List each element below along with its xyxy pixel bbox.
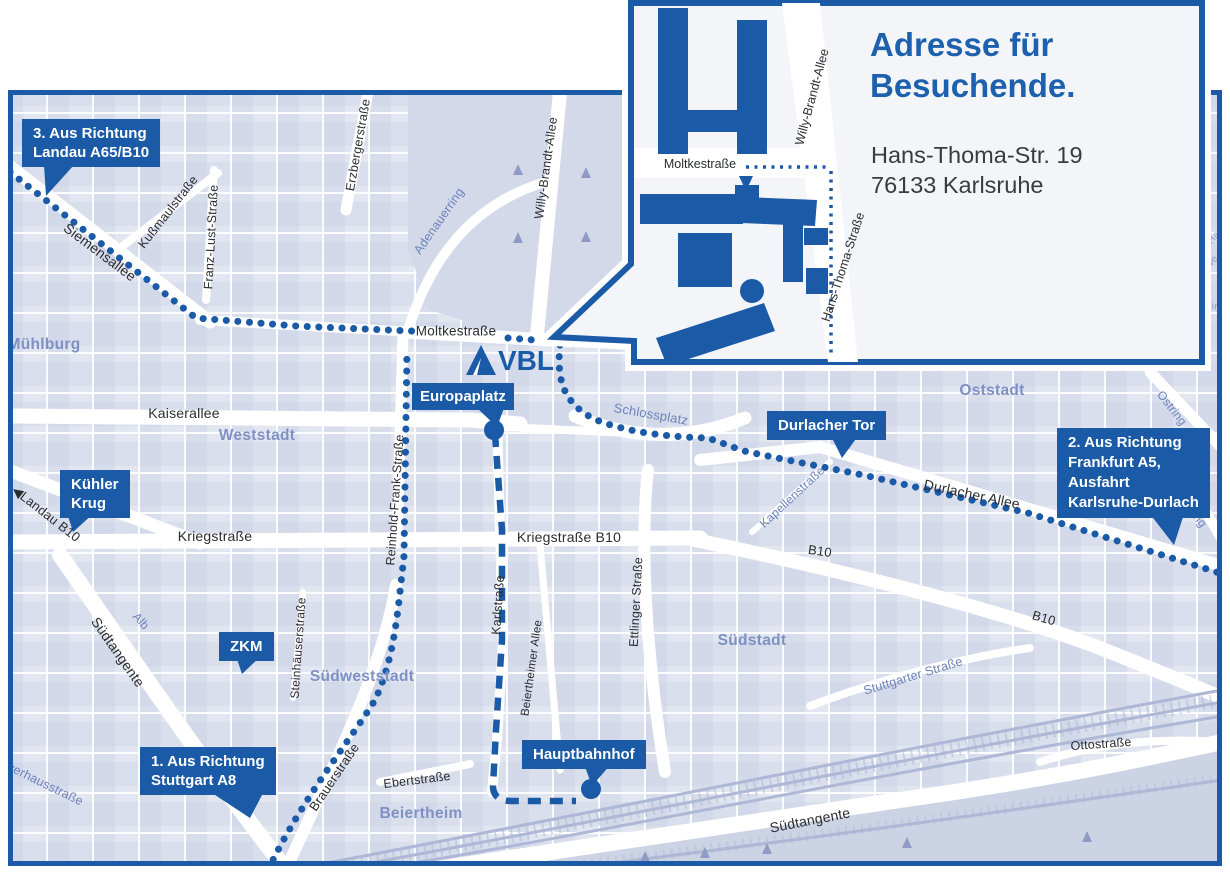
- karlsruhe-directions-map: Siemensallee Kußmaulstraße Franz-Lust-St…: [0, 0, 1230, 874]
- district-label-beiertheim: Beiertheim: [379, 805, 462, 823]
- district-label-suedstadt: Südstadt: [718, 632, 787, 650]
- callout-europaplatz: Europaplatz: [412, 383, 514, 410]
- callout-frankfurt-line2: Frankfurt A5,: [1068, 453, 1199, 473]
- callout-stuttgart-line2: Stuttgart A8: [151, 771, 265, 790]
- street-label-kriegstrasse: Kriegstraße: [178, 528, 253, 544]
- callout-frankfurt-line3: Ausfahrt: [1068, 473, 1199, 493]
- callout-kuehler-krug: Kühler Krug: [60, 470, 130, 518]
- street-label-kaiserallee: Kaiserallee: [148, 405, 219, 421]
- inset-title-line1: Adresse für: [870, 24, 1075, 65]
- callout-landau-line2: Landau A65/B10: [33, 143, 149, 162]
- callout-frankfurt-line4: Karlsruhe-Durlach: [1068, 493, 1199, 513]
- street-label-kriegstrasse-b10: Kriegstraße B10: [517, 529, 621, 545]
- callout-hauptbahnhof: Hauptbahnhof: [522, 740, 646, 769]
- callout-durlacher-tor-label: Durlacher Tor: [778, 416, 875, 435]
- district-label-oststadt: Oststadt: [959, 382, 1024, 400]
- callout-hauptbahnhof-label: Hauptbahnhof: [533, 745, 635, 764]
- callout-frankfurt-line1: 2. Aus Richtung: [1068, 433, 1199, 453]
- callout-kuehler-krug-line1: Kühler: [71, 475, 119, 494]
- callout-kuehler-krug-line2: Krug: [71, 494, 119, 513]
- vbl-logo: VBL: [465, 342, 554, 376]
- map-canvas: Siemensallee Kußmaulstraße Franz-Lust-St…: [13, 95, 1217, 861]
- district-label-muehlburg: Mühlburg: [13, 336, 81, 354]
- callout-frankfurt-a5: 2. Aus Richtung Frankfurt A5, Ausfahrt K…: [1057, 428, 1210, 518]
- district-label-weststadt: Weststadt: [219, 427, 295, 445]
- street-label-b10-mid: B10: [807, 542, 833, 560]
- map-viewport: Siemensallee Kußmaulstraße Franz-Lust-St…: [13, 95, 1217, 861]
- callout-durlacher-tor: Durlacher Tor: [767, 411, 886, 440]
- inset-title: Adresse für Besuchende.: [870, 24, 1075, 106]
- callout-europaplatz-label: Europaplatz: [420, 387, 506, 406]
- callout-landau-line1: 3. Aus Richtung: [33, 124, 149, 143]
- callout-landau-a65: 3. Aus Richtung Landau A65/B10: [22, 119, 160, 167]
- vbl-triangle-icon: [465, 342, 497, 376]
- street-label-moltkestrasse: Moltkestraße: [416, 324, 496, 339]
- vbl-logo-text: VBL: [498, 346, 554, 376]
- callout-stuttgart-a8: 1. Aus Richtung Stuttgart A8: [140, 747, 276, 795]
- callout-stuttgart-line1: 1. Aus Richtung: [151, 752, 265, 771]
- edge-fragment-3: ein: [1206, 302, 1217, 313]
- district-label-suedweststadt: Südweststadt: [310, 668, 414, 686]
- callout-zkm-label: ZKM: [230, 637, 263, 656]
- callout-zkm: ZKM: [219, 632, 274, 661]
